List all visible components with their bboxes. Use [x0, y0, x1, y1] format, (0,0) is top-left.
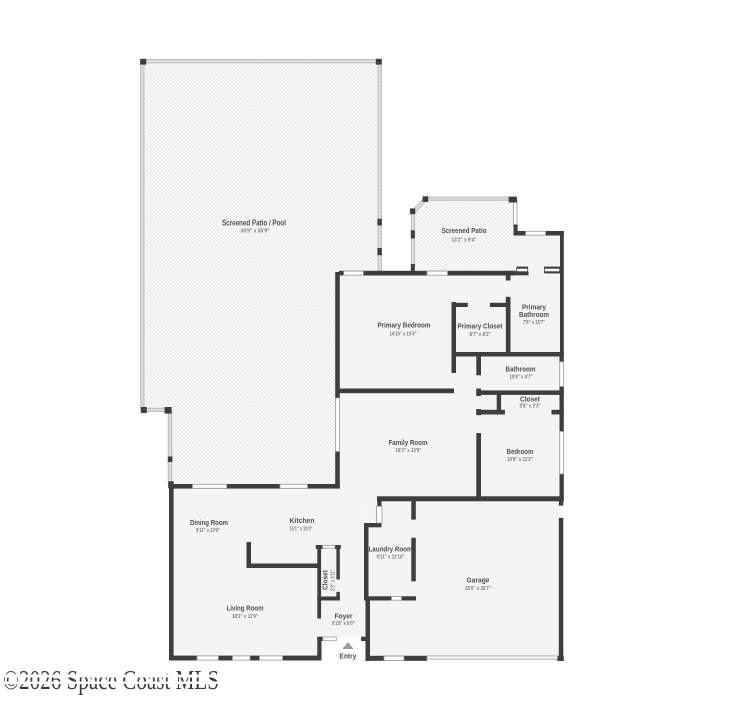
svg-text:Bathroom: Bathroom	[519, 312, 549, 319]
svg-text:Laundry Room: Laundry Room	[369, 547, 413, 554]
svg-text:25'6" x 20'7": 25'6" x 20'7"	[465, 586, 491, 592]
svg-text:Foyer: Foyer	[335, 614, 353, 621]
svg-text:5'10" x 5'0": 5'10" x 5'0"	[332, 621, 355, 627]
svg-text:Closet: Closet	[323, 569, 330, 590]
svg-text:10'8" x 11'2": 10'8" x 11'2"	[507, 457, 533, 463]
svg-text:Closet: Closet	[520, 397, 541, 404]
svg-text:Screened Patio / Pool: Screened Patio / Pool	[222, 219, 286, 228]
svg-text:2'3" x 3'11": 2'3" x 3'11"	[331, 569, 337, 591]
svg-text:Living Room: Living Room	[227, 606, 264, 613]
svg-text:18'3" x 13'9": 18'3" x 13'9"	[396, 448, 422, 454]
svg-text:15'1" x 10'0": 15'1" x 10'0"	[290, 527, 313, 533]
svg-text:Garage: Garage	[467, 578, 490, 585]
svg-text:18'2" x 11'9": 18'2" x 11'9"	[232, 614, 258, 620]
svg-text:13'2" x 9'4": 13'2" x 9'4"	[452, 238, 477, 244]
svg-text:Dining Room: Dining Room	[190, 520, 228, 527]
svg-text:Primary: Primary	[522, 305, 546, 312]
svg-text:8'8" x 2'3": 8'8" x 2'3"	[520, 404, 541, 410]
svg-text:Family Room: Family Room	[389, 440, 428, 447]
svg-text:9'11" x 10'0": 9'11" x 10'0"	[196, 528, 220, 534]
svg-text:10'8" x 4'7": 10'8" x 4'7"	[510, 375, 533, 381]
svg-text:8'7" x 8'2": 8'7" x 8'2"	[470, 332, 491, 338]
svg-text:Primary Closet: Primary Closet	[458, 324, 504, 331]
svg-text:Entry: Entry	[339, 654, 356, 661]
svg-text:9'11" x 12'10": 9'11" x 12'10"	[377, 555, 405, 561]
svg-text:Screened Patio: Screened Patio	[442, 228, 487, 235]
svg-text:Kitchen: Kitchen	[290, 518, 315, 525]
svg-text:Bedroom: Bedroom	[507, 449, 534, 456]
svg-text:7'8" x 15'7": 7'8" x 15'7"	[523, 320, 545, 326]
svg-text:Primary Bedroom: Primary Bedroom	[378, 323, 431, 330]
svg-text:30'9" x 55'9": 30'9" x 55'9"	[241, 229, 270, 235]
svg-text:Bathroom: Bathroom	[506, 367, 536, 374]
svg-text:14'10" x 15'4": 14'10" x 15'4"	[390, 332, 417, 338]
